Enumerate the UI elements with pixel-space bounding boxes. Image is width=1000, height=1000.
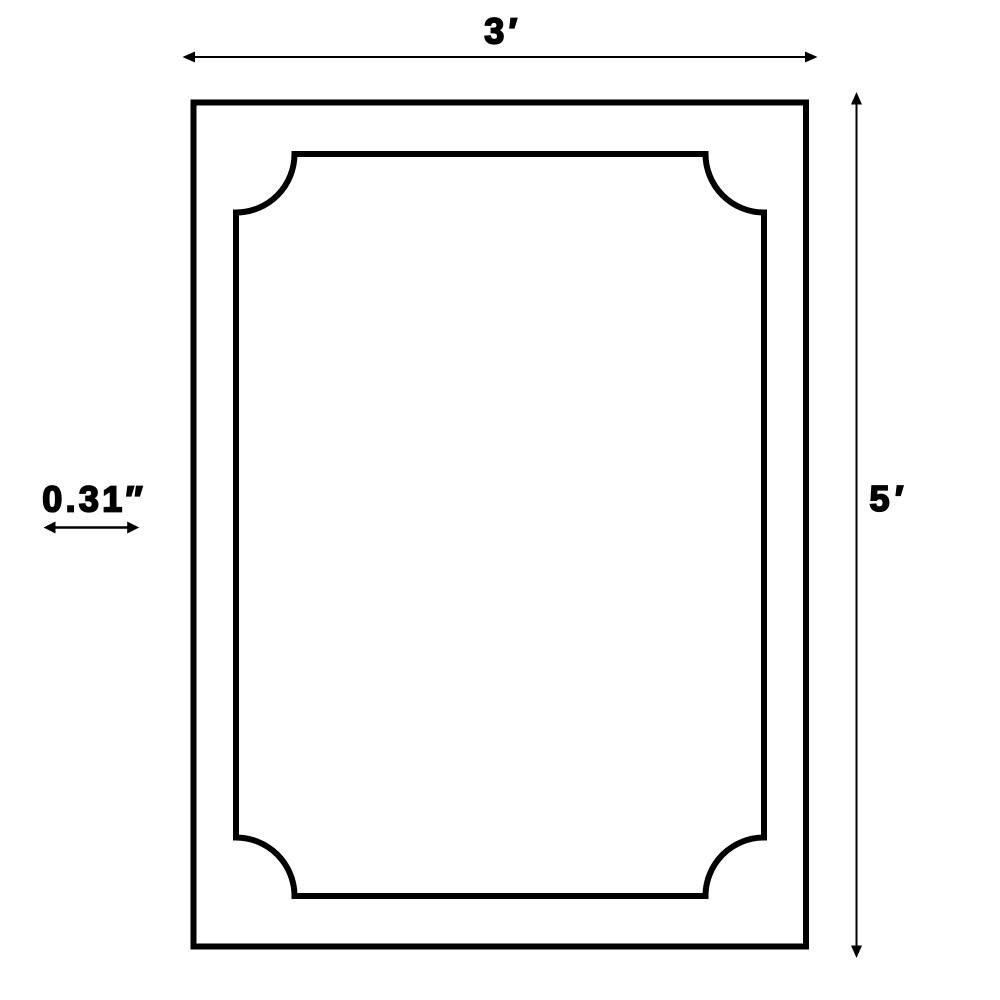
svg-text:3′: 3′ <box>484 11 517 52</box>
svg-text:5′: 5′ <box>870 478 904 519</box>
svg-text:0.31″: 0.31″ <box>42 479 143 520</box>
